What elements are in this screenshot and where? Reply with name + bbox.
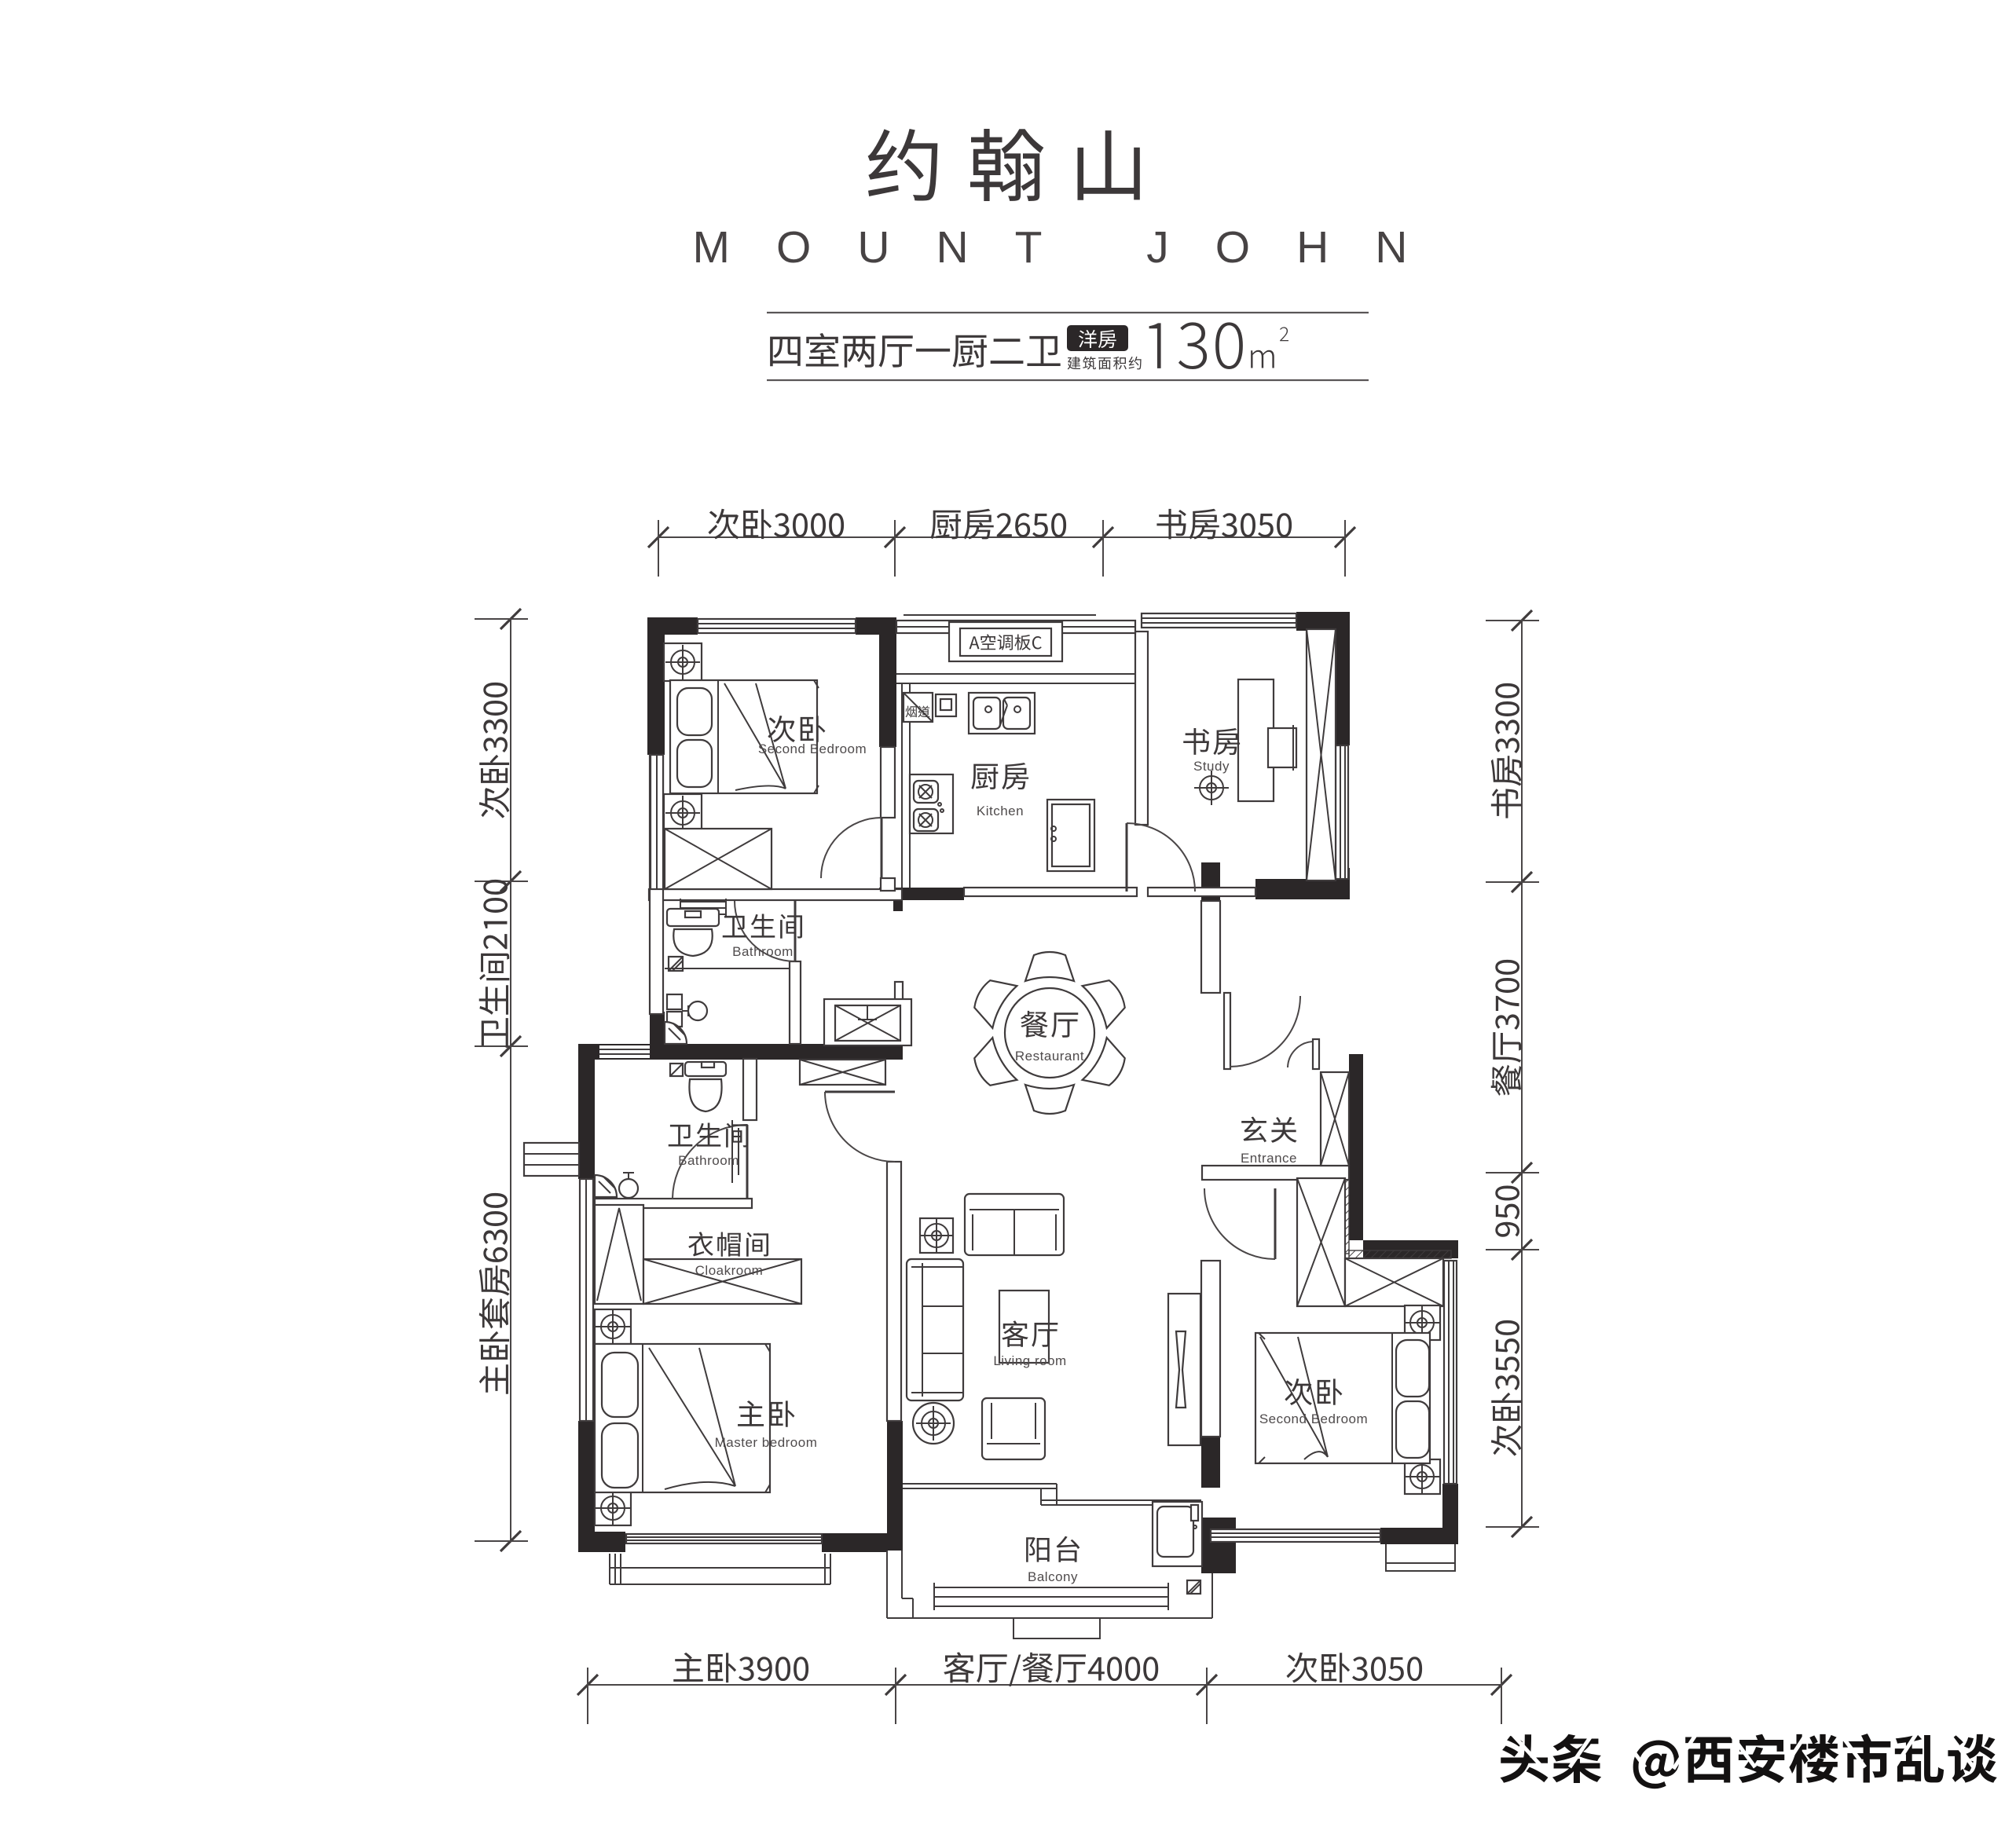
svg-text:Master bedroom: Master bedroom [715,1435,818,1450]
svg-text:Restaurant: Restaurant [1015,1049,1084,1064]
svg-text:Balcony: Balcony [1028,1569,1078,1584]
svg-text:Kitchen: Kitchen [977,804,1024,818]
svg-text:Second Bedroom: Second Bedroom [1259,1411,1368,1426]
svg-text:Living room: Living room [993,1353,1066,1368]
svg-text:Bathroom: Bathroom [732,944,794,959]
svg-text:MOUNT JOHN: MOUNT JOHN [693,222,1454,273]
svg-text:Study: Study [1193,759,1230,774]
svg-text:Cloakroom: Cloakroom [695,1263,764,1278]
svg-text:Entrance: Entrance [1241,1151,1297,1166]
svg-text:Second Bedroom: Second Bedroom [758,741,867,756]
svg-text:Bathroom: Bathroom [678,1153,739,1168]
